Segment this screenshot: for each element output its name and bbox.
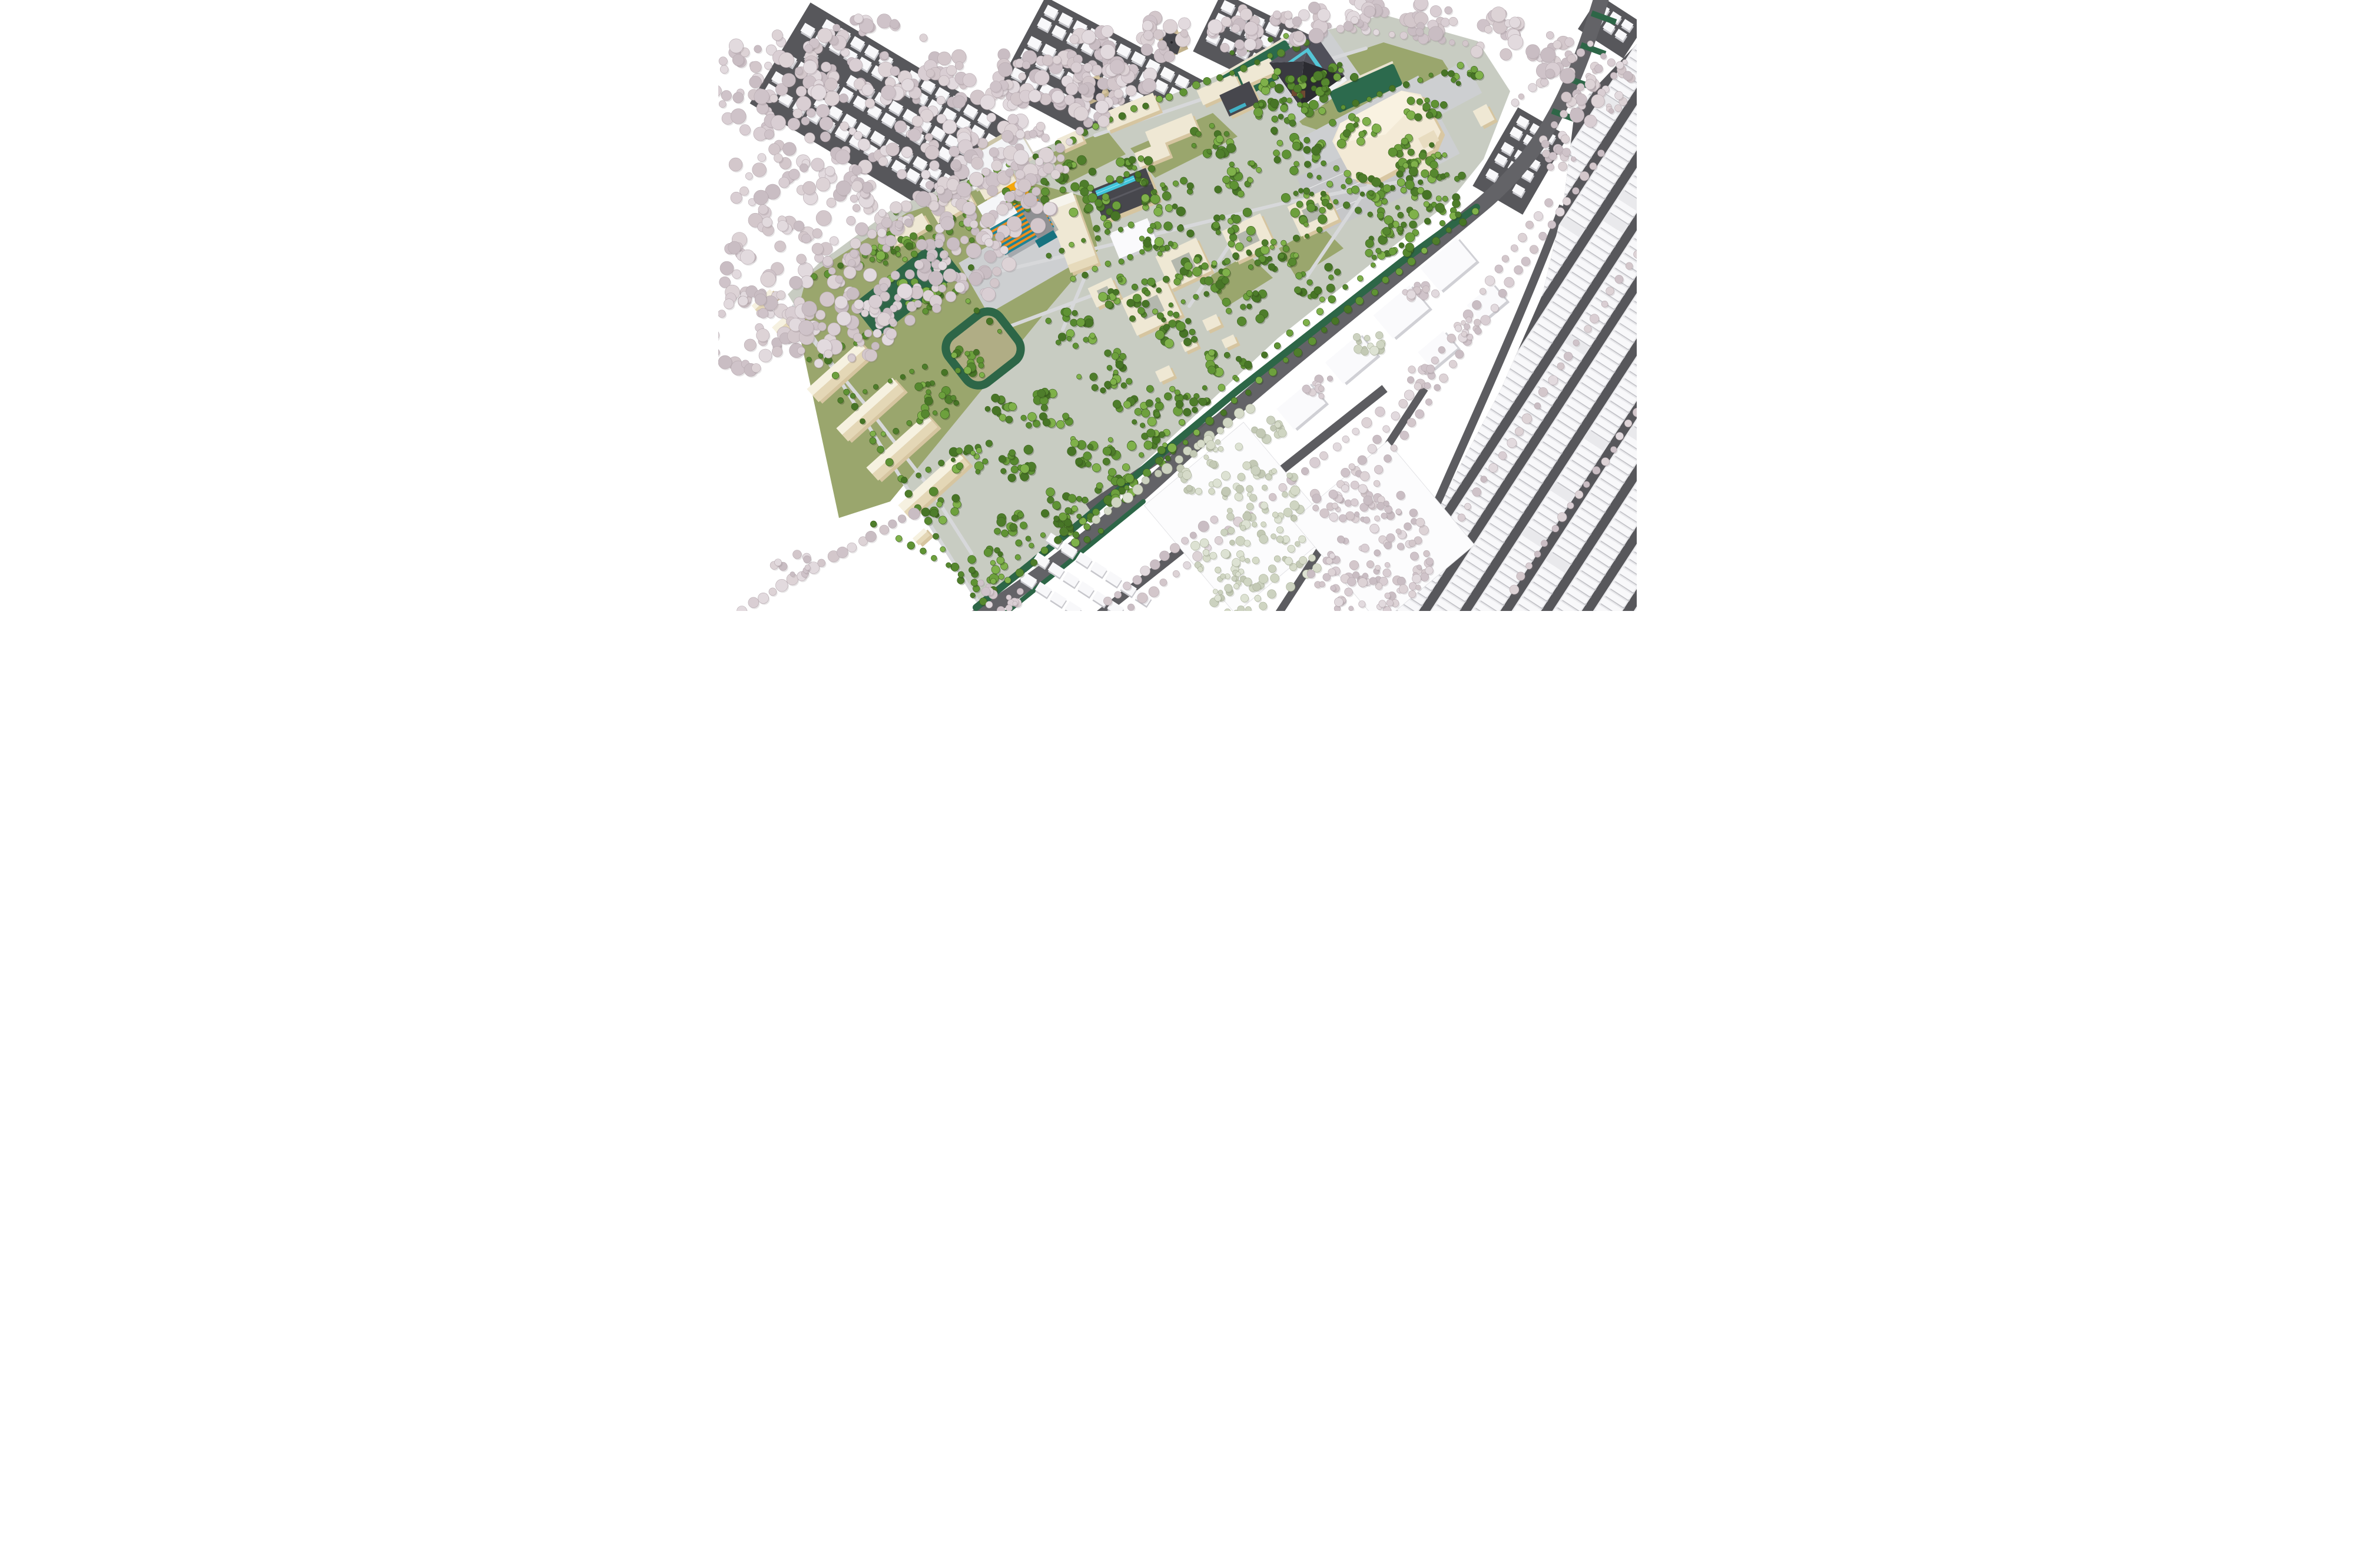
tree: [1089, 168, 1096, 175]
tree: [1271, 425, 1276, 431]
tree: [939, 392, 946, 398]
tree: [1244, 39, 1256, 51]
tree: [1224, 258, 1230, 264]
tree: [1601, 301, 1608, 307]
tree: [1430, 169, 1438, 177]
tree: [1281, 105, 1288, 112]
tree: [1303, 319, 1309, 325]
tree: [1514, 265, 1523, 274]
tree: [1591, 94, 1604, 107]
tree: [794, 221, 804, 231]
tree: [1073, 343, 1079, 349]
tree: [1462, 41, 1468, 46]
tree: [1020, 522, 1027, 529]
tree: [1551, 121, 1557, 128]
tree: [1262, 485, 1267, 490]
tree: [970, 451, 975, 456]
tree: [929, 487, 938, 496]
tree: [1455, 350, 1464, 358]
tree: [1164, 222, 1173, 231]
tree: [769, 588, 777, 596]
tree: [1326, 284, 1335, 292]
tree: [1442, 196, 1448, 201]
tree: [1253, 108, 1262, 117]
tree: [1001, 469, 1006, 474]
tree: [1451, 77, 1456, 82]
tree: [947, 65, 957, 75]
tree: [1261, 521, 1266, 527]
tree: [1083, 452, 1092, 460]
tree: [1071, 539, 1079, 547]
tree: [1232, 576, 1237, 582]
tree: [798, 263, 812, 277]
tree: [1135, 408, 1142, 415]
tree: [1072, 506, 1077, 511]
tree: [848, 260, 855, 267]
tree: [1255, 59, 1261, 65]
tree: [876, 251, 885, 260]
tree: [1227, 508, 1232, 513]
tree: [1321, 327, 1327, 333]
tree: [1421, 248, 1427, 254]
tree: [986, 318, 993, 325]
tree: [911, 251, 917, 257]
tree: [976, 447, 982, 453]
tree: [1259, 602, 1267, 610]
tree: [1102, 25, 1113, 37]
tree: [1009, 450, 1016, 456]
tree: [1421, 170, 1429, 177]
tree: [990, 81, 1001, 92]
tree: [886, 328, 897, 339]
tree: [1387, 534, 1395, 542]
tree: [1235, 39, 1244, 49]
tree: [1058, 333, 1066, 341]
tree: [1100, 44, 1115, 59]
tree: [1127, 254, 1133, 260]
tree: [863, 268, 877, 282]
tree: [1281, 240, 1286, 245]
tree: [814, 359, 823, 368]
tree: [1041, 178, 1048, 185]
tree: [1281, 193, 1290, 202]
tree: [1293, 85, 1302, 93]
tree: [1193, 294, 1199, 300]
tree: [1208, 350, 1215, 356]
tree: [877, 228, 886, 237]
tree: [1534, 551, 1541, 557]
tree: [1145, 290, 1150, 296]
tree: [1271, 127, 1278, 134]
tree: [1557, 363, 1564, 370]
tree: [1118, 227, 1123, 232]
tree: [1097, 115, 1109, 127]
tree: [865, 98, 875, 108]
tree: [1043, 418, 1050, 426]
tree: [928, 271, 943, 286]
tree: [1357, 275, 1363, 281]
tree: [812, 228, 822, 238]
tree: [1268, 264, 1275, 271]
tree: [1565, 38, 1574, 46]
tree: [1256, 167, 1262, 172]
tree: [779, 52, 794, 68]
tree: [844, 266, 856, 278]
tree: [1316, 308, 1323, 315]
tree: [1115, 592, 1122, 599]
tree: [1042, 55, 1053, 66]
tree: [1218, 590, 1223, 594]
tree: [847, 216, 855, 225]
tree: [938, 52, 951, 65]
tree: [1404, 523, 1412, 530]
tree: [1216, 150, 1225, 158]
tree: [1518, 233, 1527, 242]
tree: [1256, 428, 1266, 438]
tree: [732, 54, 744, 65]
tree: [1417, 565, 1421, 570]
tree: [854, 131, 863, 139]
tree: [1368, 191, 1373, 195]
tree: [804, 556, 811, 563]
tree: [1299, 536, 1306, 543]
tree: [1054, 516, 1059, 521]
tree: [1183, 394, 1188, 399]
tree: [755, 294, 767, 305]
tree: [1213, 215, 1220, 221]
tree: [1374, 550, 1381, 556]
tree: [835, 275, 843, 283]
tree: [1349, 464, 1355, 470]
tree: [999, 574, 1004, 580]
tree: [1590, 314, 1598, 323]
tree: [1358, 174, 1367, 183]
tree: [838, 263, 844, 268]
tree: [1248, 178, 1253, 183]
tree: [1221, 549, 1230, 558]
tree: [1233, 253, 1239, 259]
tree: [1204, 291, 1209, 297]
tree: [1005, 577, 1011, 584]
tree: [745, 172, 752, 180]
tree: [744, 339, 756, 351]
tree: [1252, 557, 1259, 564]
tree: [1300, 75, 1307, 82]
tree: [1019, 73, 1026, 81]
tree: [1147, 278, 1155, 285]
tree: [1160, 579, 1167, 586]
tree: [1341, 105, 1346, 109]
tree: [968, 556, 976, 564]
tree: [1332, 317, 1339, 324]
tree: [1373, 29, 1379, 36]
tree: [1243, 578, 1252, 586]
tree: [836, 181, 851, 195]
tree: [1351, 186, 1359, 194]
tree: [1077, 155, 1086, 165]
tree: [1510, 17, 1521, 28]
tree: [1424, 550, 1430, 557]
tree: [1438, 347, 1445, 354]
tree: [1146, 386, 1153, 393]
tree: [1434, 384, 1441, 391]
tree: [1148, 165, 1155, 172]
tree: [994, 528, 1001, 534]
tree: [1112, 353, 1119, 360]
tree: [1245, 558, 1250, 563]
tree: [1318, 215, 1327, 224]
tree: [1085, 319, 1093, 327]
tree: [1072, 310, 1078, 316]
tree: [1342, 436, 1349, 442]
tree: [992, 406, 1001, 415]
tree: [907, 420, 912, 426]
tree: [1464, 324, 1470, 330]
tree: [1132, 165, 1137, 170]
tree: [1445, 172, 1450, 177]
tree: [1246, 503, 1253, 510]
tree: [1584, 481, 1590, 488]
tree: [1575, 491, 1583, 499]
tree: [1388, 224, 1394, 229]
tree: [1206, 417, 1214, 425]
tree: [981, 287, 995, 301]
tree: [1269, 368, 1277, 376]
tree: [926, 69, 934, 77]
tree: [1084, 536, 1090, 543]
tree: [1236, 536, 1245, 546]
tree: [1243, 461, 1251, 470]
tree: [1143, 469, 1150, 477]
tree: [777, 291, 785, 300]
tree: [1329, 119, 1336, 127]
tree: [1059, 248, 1064, 253]
tree: [969, 272, 982, 285]
tree: [1511, 99, 1519, 107]
tree: [873, 329, 881, 337]
tree: [881, 85, 896, 100]
tree: [1431, 100, 1439, 108]
tree: [1401, 138, 1408, 145]
tree: [1491, 304, 1498, 312]
tree: [1377, 212, 1384, 218]
tree: [1113, 289, 1119, 295]
tree: [1142, 409, 1150, 417]
tree: [1067, 447, 1076, 456]
tree: [1240, 594, 1248, 602]
tree: [878, 157, 887, 166]
tree: [951, 507, 959, 516]
tree: [1195, 488, 1202, 494]
tree: [1236, 485, 1244, 493]
tree: [910, 232, 917, 240]
tree: [1405, 243, 1414, 251]
tree: [1376, 91, 1382, 97]
tree: [820, 132, 830, 142]
tree: [1309, 28, 1324, 43]
tree: [881, 218, 892, 228]
tree: [1408, 149, 1414, 155]
tree: [1240, 8, 1252, 20]
tree: [1090, 333, 1096, 339]
tree: [1232, 559, 1240, 567]
tree: [1522, 414, 1532, 424]
tree: [811, 158, 824, 171]
tree: [1202, 386, 1207, 390]
tree: [1100, 215, 1106, 221]
tree: [1577, 84, 1584, 91]
tree: [916, 191, 931, 207]
tree: [1337, 139, 1346, 148]
tree: [1564, 352, 1573, 361]
tree: [1071, 439, 1079, 447]
tree: [1441, 69, 1448, 76]
tree: [955, 62, 963, 70]
tree: [933, 533, 938, 539]
tree: [1356, 137, 1365, 145]
tree: [963, 74, 976, 87]
tree: [1525, 221, 1533, 228]
tree: [1234, 408, 1244, 418]
tree: [1246, 486, 1253, 493]
tree: [1253, 291, 1258, 296]
tree: [769, 94, 778, 102]
tree: [987, 185, 998, 196]
tree: [1418, 180, 1423, 185]
tree: [1251, 466, 1261, 476]
tree: [759, 349, 772, 362]
tree: [1162, 463, 1172, 474]
tree: [888, 379, 892, 383]
tree: [1276, 536, 1283, 543]
tree: [1385, 562, 1390, 567]
tree: [752, 364, 761, 373]
tree: [1222, 176, 1230, 184]
tree: [1293, 253, 1299, 258]
tree: [924, 517, 932, 525]
tree: [1282, 150, 1291, 159]
tree: [973, 349, 979, 355]
tree: [1259, 534, 1268, 543]
tree: [897, 284, 913, 299]
tree: [1364, 6, 1375, 17]
tree: [783, 142, 797, 156]
tree: [1361, 544, 1369, 552]
tree: [970, 593, 976, 598]
tree: [1066, 83, 1078, 95]
tree: [991, 394, 1000, 402]
tree: [1391, 445, 1397, 451]
tree: [1339, 514, 1346, 522]
tree: [981, 213, 995, 227]
tree: [1041, 134, 1049, 142]
tree: [1133, 576, 1142, 584]
tree: [1215, 440, 1220, 445]
tree: [951, 352, 957, 358]
tree: [1288, 114, 1295, 121]
tree: [986, 602, 993, 609]
tree: [1213, 589, 1218, 594]
tree: [1231, 397, 1237, 403]
tree: [1123, 582, 1131, 590]
tree: [1057, 154, 1064, 162]
tree: [1373, 435, 1382, 444]
tree: [830, 237, 838, 245]
tree: [1288, 545, 1295, 553]
tree: [1117, 277, 1122, 281]
tree: [1030, 218, 1046, 233]
tree: [1240, 65, 1247, 72]
tree: [1546, 31, 1554, 39]
tree: [981, 587, 990, 596]
tree: [1318, 9, 1330, 21]
tree: [895, 536, 902, 542]
tree: [828, 267, 835, 274]
tree: [920, 34, 927, 42]
tree: [1374, 480, 1380, 487]
tree: [1400, 32, 1408, 39]
tree: [938, 261, 947, 270]
tree: [1452, 200, 1461, 208]
tree: [1383, 569, 1391, 577]
tree: [1328, 295, 1336, 303]
tree: [850, 393, 855, 398]
tree: [1203, 549, 1209, 556]
tree: [1082, 272, 1089, 278]
tree: [1354, 117, 1359, 122]
tree: [1059, 521, 1064, 527]
tree: [1405, 232, 1415, 242]
tree: [1288, 258, 1296, 266]
tree: [1163, 324, 1170, 331]
tree: [1289, 120, 1296, 127]
tree: [914, 300, 921, 307]
tree: [1282, 491, 1288, 497]
tree: [795, 67, 803, 75]
tree: [1141, 181, 1146, 186]
tree: [1301, 467, 1309, 475]
tree: [1312, 494, 1321, 503]
tree: [1215, 536, 1223, 544]
tree: [1396, 509, 1402, 514]
tree: [1458, 514, 1465, 521]
tree: [1545, 198, 1553, 207]
tree: [1069, 242, 1074, 247]
tree: [1069, 208, 1078, 217]
tree: [719, 101, 726, 108]
tree: [1372, 255, 1376, 260]
tree: [1502, 255, 1509, 263]
tree: [1187, 230, 1195, 237]
tree: [926, 225, 932, 231]
tree: [999, 456, 1006, 463]
tree: [997, 329, 1001, 333]
tree: [1286, 330, 1293, 336]
tree: [1328, 569, 1336, 576]
tree: [865, 531, 876, 542]
tree: [969, 172, 983, 186]
tree: [769, 144, 780, 155]
tree: [775, 579, 788, 592]
tree: [1327, 376, 1333, 381]
tree: [1334, 74, 1341, 81]
tree: [1365, 249, 1373, 257]
tree: [816, 211, 831, 226]
tree: [1213, 222, 1220, 229]
tree: [878, 210, 886, 217]
tree: [1382, 277, 1389, 283]
tree: [1269, 493, 1276, 501]
